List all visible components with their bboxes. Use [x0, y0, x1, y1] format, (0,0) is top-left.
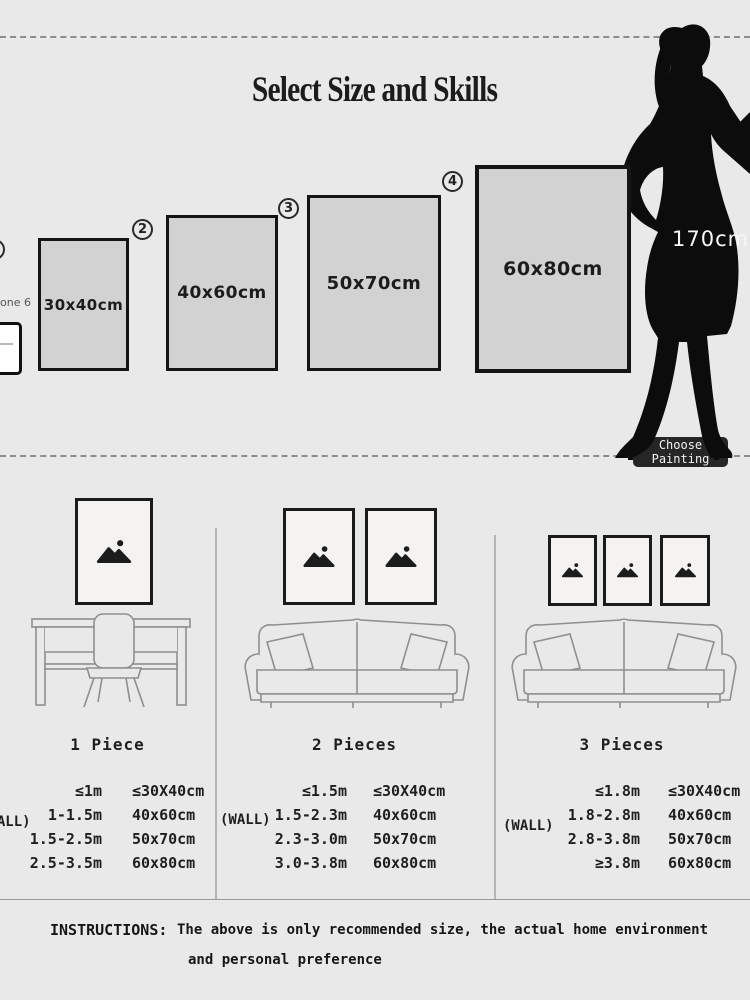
table-row: 1.8-2.8m40x60cm: [565, 803, 750, 827]
sofa-illustration: [241, 612, 473, 709]
table-row: 2.8-3.8m50x70cm: [565, 827, 750, 851]
desk-chair-illustration: [30, 612, 192, 709]
wall-range: 2.8-3.8m: [565, 830, 640, 848]
image-placeholder-icon: [92, 530, 136, 574]
size-option-50x70[interactable]: 50x70cm: [307, 195, 441, 371]
model-height-label: 170cm: [672, 227, 749, 251]
sofa-illustration: [508, 612, 740, 709]
wall-range: 1.5-2.5m: [27, 830, 102, 848]
phone-illustration: [0, 322, 22, 375]
table-row: ≤1.5m≤30X40cm: [270, 779, 463, 803]
table-row: 1.5-2.3m40x60cm: [270, 803, 463, 827]
size-table-3pieces: ≤1.8m≤30X40cm 1.8-2.8m40x60cm 2.8-3.8m50…: [565, 779, 750, 875]
table-row: 2.5-3.5m60x80cm: [27, 851, 222, 875]
wall-range: 1.5-2.3m: [270, 806, 347, 824]
size-value: 60x80cm: [132, 854, 222, 872]
section-title-1piece: 1 Piece: [0, 735, 215, 754]
page-title: Select Size and Skills: [252, 68, 497, 110]
size-value: ≤30X40cm: [132, 782, 222, 800]
wall-label-1: (WALL): [0, 814, 31, 830]
phone-label: one 6: [0, 296, 31, 309]
wall-label-2: (WALL): [220, 812, 271, 828]
section-title-2pieces: 2 Pieces: [215, 735, 494, 754]
instructions-line-2: and personal preference: [188, 952, 382, 968]
instructions-line-1: The above is only recommended size, the …: [177, 922, 708, 938]
wall-range: 2.5-3.5m: [27, 854, 102, 872]
size-option-60x80[interactable]: 60x80cm: [475, 165, 631, 373]
size-table-1piece: ≤1m≤30X40cm 1-1.5m40x60cm 1.5-2.5m50x70c…: [27, 779, 222, 875]
image-placeholder-icon: [614, 557, 641, 584]
wall-frame-2piece-b: [365, 508, 437, 605]
image-placeholder-icon: [299, 537, 339, 577]
image-placeholder-icon: [559, 557, 586, 584]
size-value: 60x80cm: [373, 854, 463, 872]
size-value: ≤30X40cm: [373, 782, 463, 800]
size-option-3-badge: 3: [278, 198, 299, 219]
size-option-40x60[interactable]: 40x60cm: [166, 215, 278, 371]
wall-range: ≤1m: [27, 782, 102, 800]
wall-range: ≤1.5m: [270, 782, 347, 800]
size-value: 40x60cm: [668, 806, 750, 824]
size-option-4-badge: 4: [442, 171, 463, 192]
size-value: 50x70cm: [668, 830, 750, 848]
size-table-2pieces: ≤1.5m≤30X40cm 1.5-2.3m40x60cm 2.3-3.0m50…: [270, 779, 463, 875]
image-placeholder-icon: [672, 557, 699, 584]
size-value: 50x70cm: [132, 830, 222, 848]
section-title-3pieces: 3 Pieces: [494, 735, 750, 754]
image-placeholder-icon: [381, 537, 421, 577]
wall-frame-3piece-b: [603, 535, 652, 606]
wall-range: 3.0-3.8m: [270, 854, 347, 872]
phone-screen-line: [0, 343, 13, 345]
size-option-60x80-label: 60x80cm: [503, 258, 603, 280]
wall-label-3: (WALL): [503, 818, 554, 834]
size-value: 60x80cm: [668, 854, 750, 872]
table-row: 3.0-3.8m60x80cm: [270, 851, 463, 875]
table-row: ≤1.8m≤30X40cm: [565, 779, 750, 803]
table-row: 1.5-2.5m50x70cm: [27, 827, 222, 851]
wall-range: 1.8-2.8m: [565, 806, 640, 824]
wall-range: 2.3-3.0m: [270, 830, 347, 848]
wall-frame-3piece-a: [548, 535, 597, 606]
size-option-1-badge: 1: [0, 239, 5, 260]
wall-frame-1piece: [75, 498, 153, 605]
size-option-40x60-label: 40x60cm: [177, 283, 267, 303]
size-option-2-badge: 2: [132, 219, 153, 240]
table-row: 2.3-3.0m50x70cm: [270, 827, 463, 851]
size-value: ≤30X40cm: [668, 782, 750, 800]
wall-frame-2piece-a: [283, 508, 355, 605]
size-guide-infographic: Select Size and Skills 170cm Choose Pain…: [0, 0, 750, 1000]
wall-frame-3piece-c: [660, 535, 710, 606]
table-row: ≥3.8m60x80cm: [565, 851, 750, 875]
size-option-30x40-label: 30x40cm: [44, 296, 123, 314]
table-row: ≤1m≤30X40cm: [27, 779, 222, 803]
size-value: 40x60cm: [132, 806, 222, 824]
size-value: 40x60cm: [373, 806, 463, 824]
wall-range: ≥3.8m: [565, 854, 640, 872]
instructions-divider: [0, 899, 750, 900]
size-value: 50x70cm: [373, 830, 463, 848]
size-option-30x40[interactable]: 30x40cm: [38, 238, 129, 371]
table-row: 1-1.5m40x60cm: [27, 803, 222, 827]
instructions-label: INSTRUCTIONS:: [50, 921, 167, 939]
size-option-50x70-label: 50x70cm: [327, 273, 422, 294]
section-divider-2: [494, 535, 496, 899]
wall-range: ≤1.8m: [565, 782, 640, 800]
wall-range: 1-1.5m: [27, 806, 102, 824]
